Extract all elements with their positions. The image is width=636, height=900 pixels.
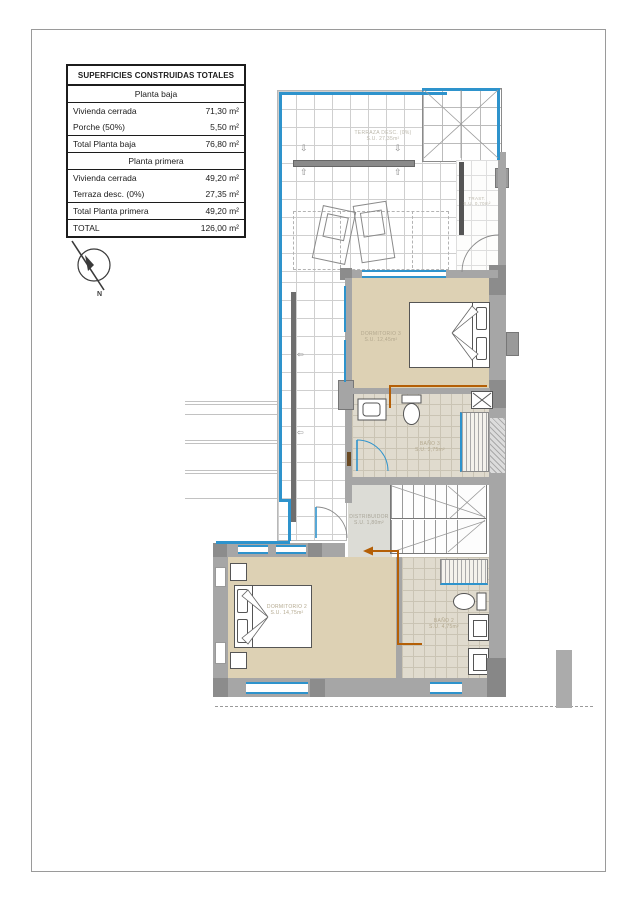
facade-glazing-line	[422, 88, 500, 91]
facade-glazing-line	[288, 499, 291, 541]
table-row: Porche (50%) 5,50 m²	[68, 119, 244, 135]
pillow	[476, 337, 487, 360]
room-area: S.U. 1,80m²	[340, 520, 398, 526]
exterior-wall-right-upper	[498, 152, 506, 282]
room-area: S.U. 0,70m²	[456, 201, 498, 206]
shower-bano3	[460, 412, 489, 472]
washbasin-unit	[468, 614, 489, 641]
trastero-label: TRAST. S.U. 0,70m²	[456, 196, 498, 206]
chair-backrest	[322, 213, 349, 241]
dormitorio3-label: DORMITORIO 3 S.U. 12,45m²	[354, 331, 408, 343]
room-area: S.U. 14,75m²	[256, 610, 318, 616]
dormitorio3-window	[362, 270, 446, 278]
facade-glazing-line	[216, 541, 290, 544]
pillow	[476, 307, 487, 330]
awning-divider	[412, 211, 414, 268]
airflow-up-arrow-icon: ⇧	[394, 168, 402, 177]
row-label: Total Planta primera	[73, 206, 149, 216]
wall-pillar	[338, 380, 354, 410]
neighbour-wall	[556, 650, 572, 708]
glazing-strip	[344, 340, 346, 382]
dormitorio2-window	[238, 545, 268, 554]
stair-treads-lower	[391, 520, 459, 553]
table-row: Terraza desc. (0%) 27,35 m²	[68, 186, 244, 202]
eave-line	[185, 498, 281, 499]
row-label: Terraza desc. (0%)	[73, 189, 144, 199]
wall-corner	[310, 679, 325, 697]
room-area: S.U. 12,45m²	[354, 337, 408, 343]
airflow-down-arrow-icon: ⇩	[300, 144, 308, 153]
row-label: Vivienda cerrada	[73, 173, 137, 183]
stair-skylight	[422, 88, 502, 162]
row-value: 126,00 m²	[201, 223, 239, 233]
eave-line	[185, 401, 281, 402]
room-area: S.U. 27,35m²	[328, 136, 438, 142]
section-planta-primera: Planta primera	[68, 153, 244, 170]
table-row: Vivienda cerrada 49,20 m²	[68, 170, 244, 186]
terrace-railing	[291, 292, 296, 522]
facade-glazing-line	[497, 88, 500, 160]
pillow	[237, 589, 248, 613]
section-planta-baja: Planta baja	[68, 86, 244, 103]
bed-headboard-line	[252, 585, 253, 648]
nightstand	[230, 652, 247, 669]
wall-corner	[213, 543, 227, 557]
eave-line	[185, 473, 281, 474]
exterior-wall-right	[489, 265, 506, 697]
bano2-label: BAÑO 2 S.U. 4,75m²	[418, 618, 470, 630]
facade-glazing-line	[279, 92, 282, 499]
room-area: S.U. 3,75m²	[404, 447, 456, 453]
chair-backrest	[360, 210, 386, 238]
stair-treads-upper	[391, 485, 459, 518]
areas-table: SUPERFICIES CONSTRUIDAS TOTALES Planta b…	[66, 64, 246, 238]
room-area: S.U. 4,75m²	[418, 624, 470, 630]
vent-shaft	[471, 391, 493, 409]
pergola-beam	[293, 160, 415, 167]
facade-glazing-line	[279, 92, 447, 95]
direction-left-arrow-icon: ⇦	[297, 428, 304, 437]
row-label: Total Planta baja	[73, 139, 136, 149]
distribuidor-label: DISTRIBUIDOR S.U. 1,80m²	[340, 514, 398, 526]
bano2-left-wall	[396, 557, 402, 678]
dormitorio2-window	[276, 545, 306, 554]
row-value: 71,30 m²	[205, 106, 239, 116]
dormitorio2-bottom-window	[246, 682, 308, 694]
basin-bowl	[473, 620, 487, 637]
bano3-top-wall	[352, 388, 490, 394]
table-row-total: Total Planta primera 49,20 m²	[68, 202, 244, 220]
table-row: Vivienda cerrada 71,30 m²	[68, 103, 244, 119]
row-label: Porche (50%)	[73, 122, 125, 132]
obscured-glazing	[490, 418, 505, 473]
row-value: 76,80 m²	[205, 139, 239, 149]
bano3-bottom-wall	[348, 477, 490, 485]
pillow	[237, 619, 248, 643]
eave-line	[185, 414, 281, 415]
row-label: TOTAL	[73, 223, 100, 233]
eave-line	[185, 404, 281, 405]
table-row-total: Total Planta baja 76,80 m²	[68, 135, 244, 153]
row-value: 49,20 m²	[205, 206, 239, 216]
wall-pilaster	[506, 332, 519, 356]
row-value: 49,20 m²	[205, 173, 239, 183]
bano2-window	[430, 682, 462, 694]
table-row-grand-total: TOTAL 126,00 m²	[68, 220, 244, 236]
nightstand	[230, 563, 247, 581]
glazing-strip	[344, 286, 346, 332]
row-label: Vivienda cerrada	[73, 106, 137, 116]
basin-bowl	[473, 654, 487, 671]
eave-line	[185, 443, 281, 444]
shower-bano2	[440, 559, 488, 585]
dormitorio2-label: DORMITORIO 2 S.U. 14,75m²	[256, 604, 318, 616]
door-hinge-mark	[347, 452, 351, 466]
wall-niche	[215, 642, 226, 664]
eave-line	[185, 470, 281, 471]
areas-table-title: SUPERFICIES CONSTRUIDAS TOTALES	[68, 66, 244, 86]
terraza-label: TERRAZA DESC. (0%) S.U. 27,35m²	[328, 130, 438, 142]
wall-corner	[308, 543, 322, 557]
row-value: 5,50 m²	[210, 122, 239, 132]
wall-corner	[213, 678, 228, 697]
row-value: 27,35 m²	[205, 189, 239, 199]
eave-line	[185, 440, 281, 441]
plot-boundary-dashed	[215, 706, 593, 707]
wall-corner-block	[487, 658, 506, 697]
airflow-up-arrow-icon: ⇧	[300, 168, 308, 177]
dormitorio3-left-wall	[345, 278, 352, 393]
direction-left-arrow-icon: ⇦	[297, 350, 304, 359]
wall-niche	[215, 567, 226, 587]
bano3-label: BAÑO 3 S.U. 3,75m²	[404, 441, 456, 453]
washbasin-unit	[468, 648, 489, 675]
stair-landing-line	[390, 518, 487, 519]
bed-headboard-line	[472, 302, 473, 368]
airflow-down-arrow-icon: ⇩	[394, 144, 402, 153]
